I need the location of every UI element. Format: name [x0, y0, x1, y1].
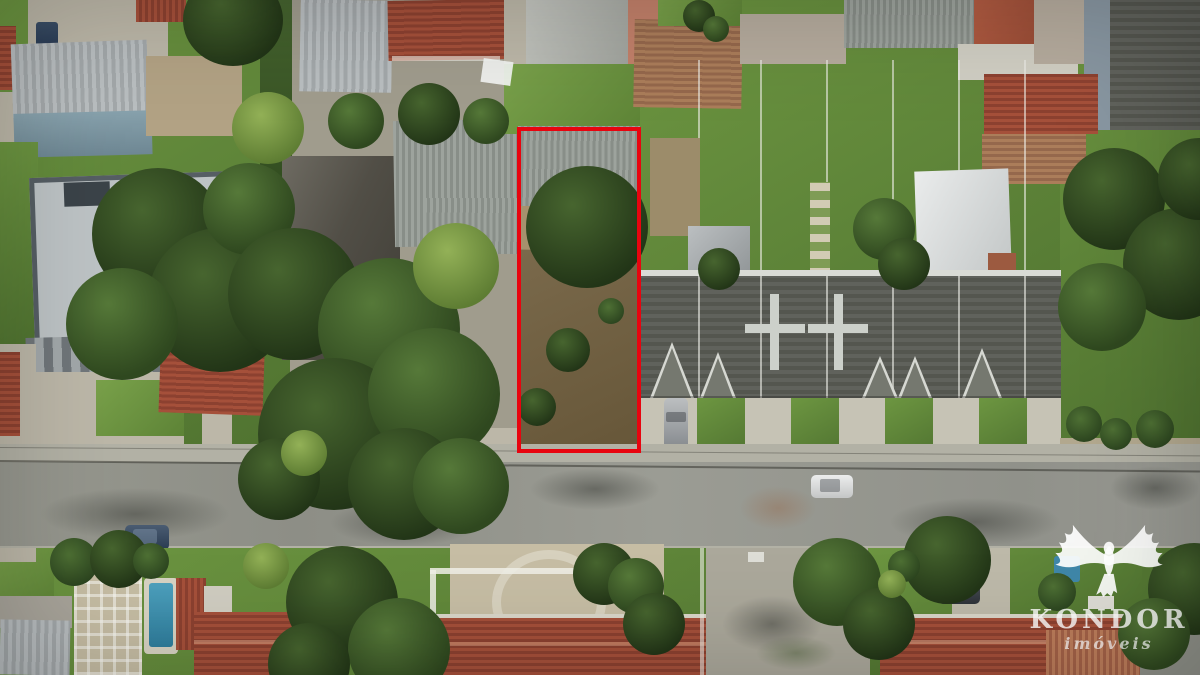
- tree-canopy: [281, 430, 327, 476]
- roof-red-tile: [387, 0, 506, 61]
- palm-tree: [703, 16, 729, 42]
- tree-canopy: [413, 438, 509, 534]
- parked-car-silver: [664, 398, 688, 450]
- tree-canopy: [328, 93, 384, 149]
- tree-canopy: [243, 543, 289, 589]
- hedge-bush: [1100, 418, 1132, 450]
- rowhouse-roof: [641, 276, 1061, 398]
- yard-dirt: [146, 56, 242, 136]
- hedge-bush: [878, 570, 906, 598]
- roof-red-tile: [136, 0, 186, 22]
- roof-shingle-dark: [1110, 0, 1200, 130]
- tree-canopy: [878, 238, 930, 290]
- hedge-bush: [1136, 410, 1174, 448]
- road-shadow: [530, 468, 660, 510]
- backyard-lawn: [504, 64, 640, 134]
- skylight-frame: [808, 324, 868, 333]
- aerial-photo: KONDOR imóveis: [0, 0, 1200, 675]
- skylight-frame: [745, 324, 805, 333]
- roof-gray-hip: [526, 0, 640, 66]
- condor-eagle-icon: [1039, 520, 1179, 602]
- hedge-bush: [133, 543, 169, 579]
- tree-canopy: [413, 223, 499, 309]
- fence-line: [1024, 60, 1026, 278]
- car-windshield: [666, 412, 686, 422]
- tree-canopy: [463, 98, 509, 144]
- roof-seam: [958, 276, 960, 398]
- tree-canopy: [66, 268, 178, 380]
- tree-canopy: [232, 92, 304, 164]
- fence-line: [760, 60, 762, 278]
- garden-bed: [650, 138, 700, 236]
- roof-red-tile: [0, 352, 20, 436]
- roof-seam: [1024, 276, 1026, 398]
- debris: [748, 552, 764, 562]
- patio: [740, 14, 846, 64]
- house-wall: [430, 568, 580, 574]
- roof-seam: [892, 276, 894, 398]
- roof-seam: [760, 276, 762, 398]
- tree-canopy: [698, 248, 740, 290]
- roof-red-tile: [984, 74, 1098, 134]
- roof-metal-light: [299, 0, 393, 93]
- lot-boundary-outline: [517, 127, 641, 453]
- tree-canopy: [1058, 263, 1146, 351]
- road-stain: [740, 486, 816, 530]
- stepping-stones: [810, 182, 830, 276]
- tree-canopy: [843, 588, 915, 660]
- tree-canopy: [398, 83, 460, 145]
- kondor-watermark: KONDOR imóveis: [1019, 520, 1199, 652]
- roof-seam: [826, 276, 828, 398]
- shrub: [623, 593, 685, 655]
- car-windshield: [820, 479, 840, 492]
- watermark-brand: KONDOR: [1019, 607, 1199, 633]
- path: [0, 548, 36, 562]
- road-shadow: [1110, 466, 1200, 510]
- moss-stain: [756, 636, 836, 670]
- roof-seam: [698, 276, 700, 398]
- watermark-tagline: imóveis: [1019, 636, 1199, 652]
- roof-metal-light: [0, 619, 70, 675]
- fence: [700, 548, 704, 675]
- hedge-bush: [1066, 406, 1102, 442]
- swimming-pool: [149, 583, 173, 647]
- tarp: [480, 58, 513, 86]
